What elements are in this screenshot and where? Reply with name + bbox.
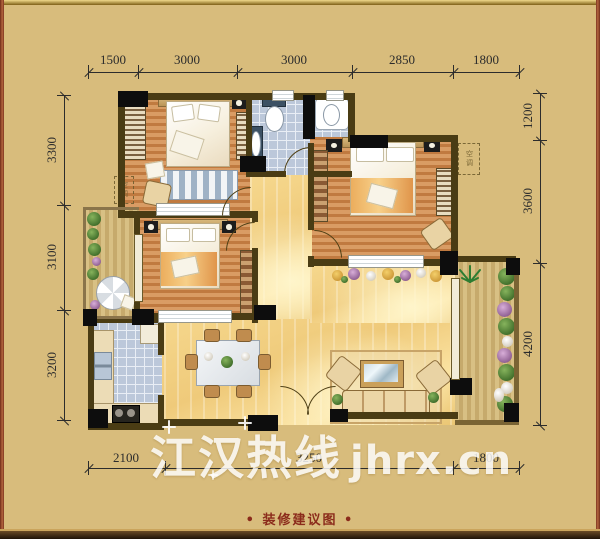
wall-segment [308,171,352,177]
planter-greenery [498,318,515,335]
planter-flowers [502,336,513,347]
dining-chair [236,385,252,398]
watermark-en-text: jhrx.cn [350,438,512,484]
potted-plant [87,212,101,226]
column [118,91,148,107]
planter-flowers [497,302,512,317]
dining-chair [185,354,198,370]
potted-plant [87,228,99,240]
burner [115,409,123,417]
burner [127,409,135,417]
plate [204,352,213,361]
planter-greenery [500,286,515,301]
column [254,305,276,320]
column [350,135,388,148]
wall-segment [308,259,350,266]
window [156,203,230,216]
dim-label-left-3: 3200 [44,352,60,378]
plate [241,352,250,361]
planter-greenery [498,364,515,381]
window [326,90,344,101]
pillow [356,147,384,162]
flower-decor [416,268,426,278]
planter-flowers [497,348,512,363]
pillow [171,104,195,123]
bath-counter [240,156,266,172]
sparkle-icon [162,420,176,434]
dim-label-right-2: 3600 [520,188,536,214]
toilet [265,106,284,132]
dim-label-top-4: 2850 [389,52,415,68]
sparkle-icon [208,470,218,480]
column [303,95,315,139]
dining-chair [236,329,252,342]
dim-label-right-3: 4200 [520,331,536,357]
pillow [197,104,221,123]
dining-chair [204,329,220,342]
dining-chair [204,385,220,398]
floor-plan-page: 1500 3000 3000 2850 1800 3300 3100 3200 … [0,0,600,539]
potted-plant [428,392,439,403]
dim-label-left-2: 3100 [44,244,60,270]
sink-basin [251,131,261,157]
ac-unit-box: 空调 [458,143,480,175]
potted-plant [87,268,99,280]
caption: • 装修建议图 • [0,509,600,528]
column [88,409,108,428]
wall-segment [252,211,258,222]
flower-pot [92,257,101,266]
wall-segment [451,135,458,267]
pillow [192,228,216,242]
wall-segment [118,93,354,100]
caption-bullet: • [246,513,256,528]
rug [160,170,238,200]
watermark-cn-text: 江汉热线 [150,422,342,488]
side-table [145,161,166,180]
dim-label-left-1: 3300 [44,137,60,163]
dim-label-bottom-1: 2100 [113,450,139,466]
nightstand [326,139,342,152]
leaf-decor [394,276,401,283]
dim-label-top-1: 1500 [100,52,126,68]
sliding-door [134,234,143,302]
flower-decor [400,270,411,281]
balcony-wall [514,258,519,425]
flower-decor [348,268,360,280]
window [272,90,294,101]
palm-plant [456,262,484,286]
watermark: 江汉热线 jhrx.cn [150,422,512,488]
dim-label-top-3: 3000 [281,52,307,68]
column [450,378,472,395]
column [83,309,97,326]
flower-decor [366,271,376,281]
hallway [250,175,312,322]
pillow [386,147,414,162]
pillow [166,228,190,242]
kitchen-sink [94,352,112,380]
window [348,255,424,268]
potted-plant [88,243,101,256]
dining-chair [258,354,271,370]
pebble-decor [494,388,504,402]
wall-segment [348,412,458,419]
dim-label-right-1: 1200 [520,103,536,129]
column [504,403,519,422]
tall-cabinet [313,150,328,222]
column [440,251,458,275]
window [158,310,232,323]
dim-label-top-5: 1800 [473,52,499,68]
column [132,309,154,325]
caption-bullet: • [344,513,354,528]
balcony-railing [83,207,86,319]
wardrobe [124,98,146,160]
dim-label-top-2: 3000 [174,52,200,68]
sliding-door [451,278,460,380]
nightstand [144,221,158,233]
balcony-railing [83,207,139,210]
sparkle-icon [238,416,252,430]
shower-drain [323,104,340,126]
column [506,258,520,275]
coffee-table-glass [364,364,398,382]
caption-text: 装修建议图 [262,513,337,528]
leaf-decor [341,276,348,283]
table-centerpiece [221,356,233,368]
wall-segment [118,93,125,218]
flower-decor [382,268,394,280]
